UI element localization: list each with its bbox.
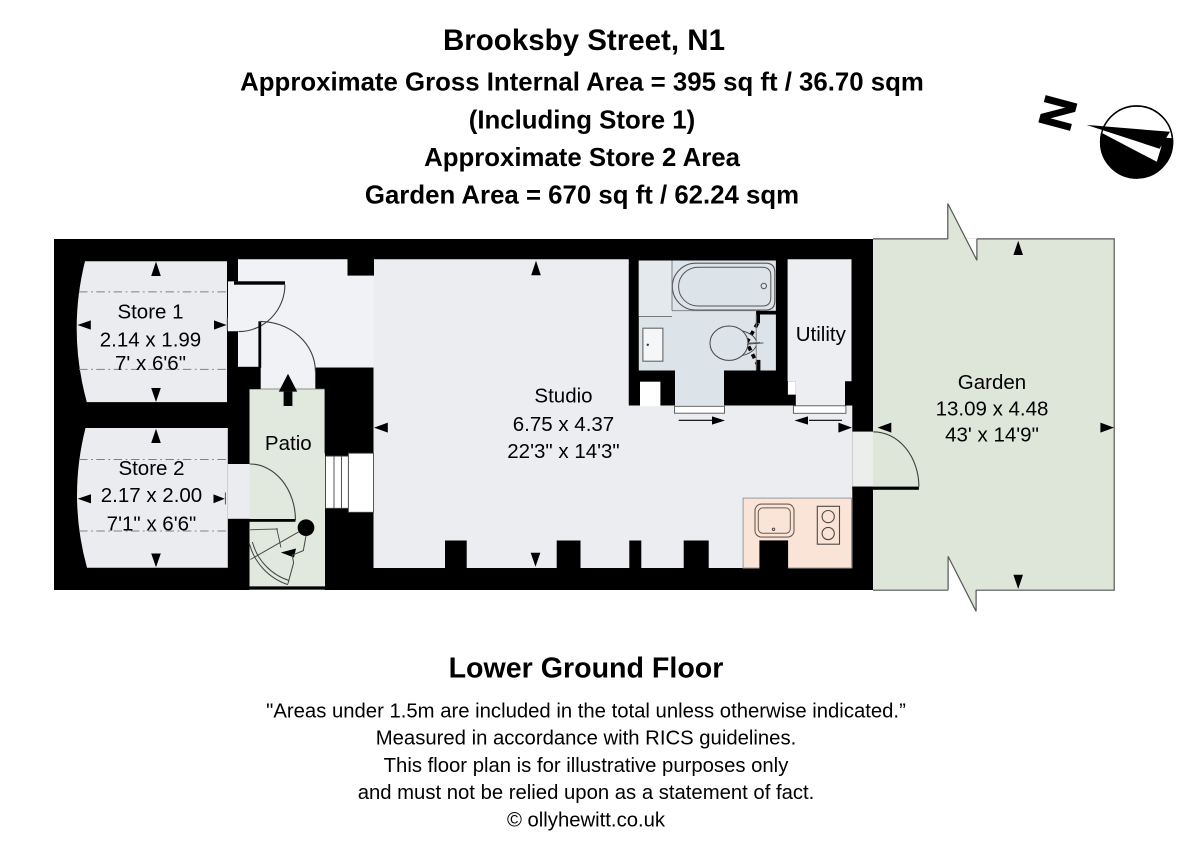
- svg-text:Brooksby Street, N1: Brooksby Street, N1: [443, 24, 725, 57]
- svg-text:Studio: Studio: [534, 385, 592, 408]
- svg-text:Patio: Patio: [265, 432, 312, 455]
- svg-text:2.17 x 2.00: 2.17 x 2.00: [101, 484, 202, 507]
- svg-text:N: N: [1029, 90, 1088, 136]
- svg-text:Lower Ground Floor: Lower Ground Floor: [449, 653, 724, 685]
- svg-text:© ollyhewitt.co.uk: © ollyhewitt.co.uk: [507, 810, 666, 832]
- svg-text:Measured in accordance with RI: Measured in accordance with RICS guideli…: [376, 728, 797, 750]
- svg-text:Garden: Garden: [958, 371, 1026, 394]
- svg-text:6.75 x 4.37: 6.75 x 4.37: [513, 413, 614, 436]
- svg-text:(Including Store 1): (Including Store 1): [469, 106, 695, 134]
- svg-text:This floor plan is for illustr: This floor plan is for illustrative purp…: [384, 755, 790, 777]
- svg-text:2.14 x 1.99: 2.14 x 1.99: [100, 329, 201, 352]
- svg-text:43' x 14'9": 43' x 14'9": [945, 424, 1039, 447]
- svg-text:13.09 x 4.48: 13.09 x 4.48: [936, 398, 1049, 421]
- svg-text:7'1" x 6'6": 7'1" x 6'6": [107, 513, 197, 536]
- svg-text:Approximate Store 2 Area: Approximate Store 2 Area: [424, 144, 741, 172]
- svg-text:7' x 6'6": 7' x 6'6": [115, 352, 186, 375]
- svg-text:and must not be relied upon as: and must not be relied upon as a stateme…: [358, 782, 815, 804]
- svg-text:Utility: Utility: [796, 323, 847, 346]
- svg-text:"Areas under 1.5m are included: "Areas under 1.5m are included in the to…: [266, 700, 906, 722]
- svg-text:Store 1: Store 1: [117, 301, 183, 324]
- svg-text:22'3" x 14'3": 22'3" x 14'3": [507, 440, 619, 463]
- svg-text:Approximate Gross Internal Are: Approximate Gross Internal Area = 395 sq…: [240, 69, 924, 97]
- svg-text:Garden Area = 670 sq ft / 62.2: Garden Area = 670 sq ft / 62.24 sqm: [365, 182, 799, 210]
- svg-text:Store 2: Store 2: [118, 457, 184, 480]
